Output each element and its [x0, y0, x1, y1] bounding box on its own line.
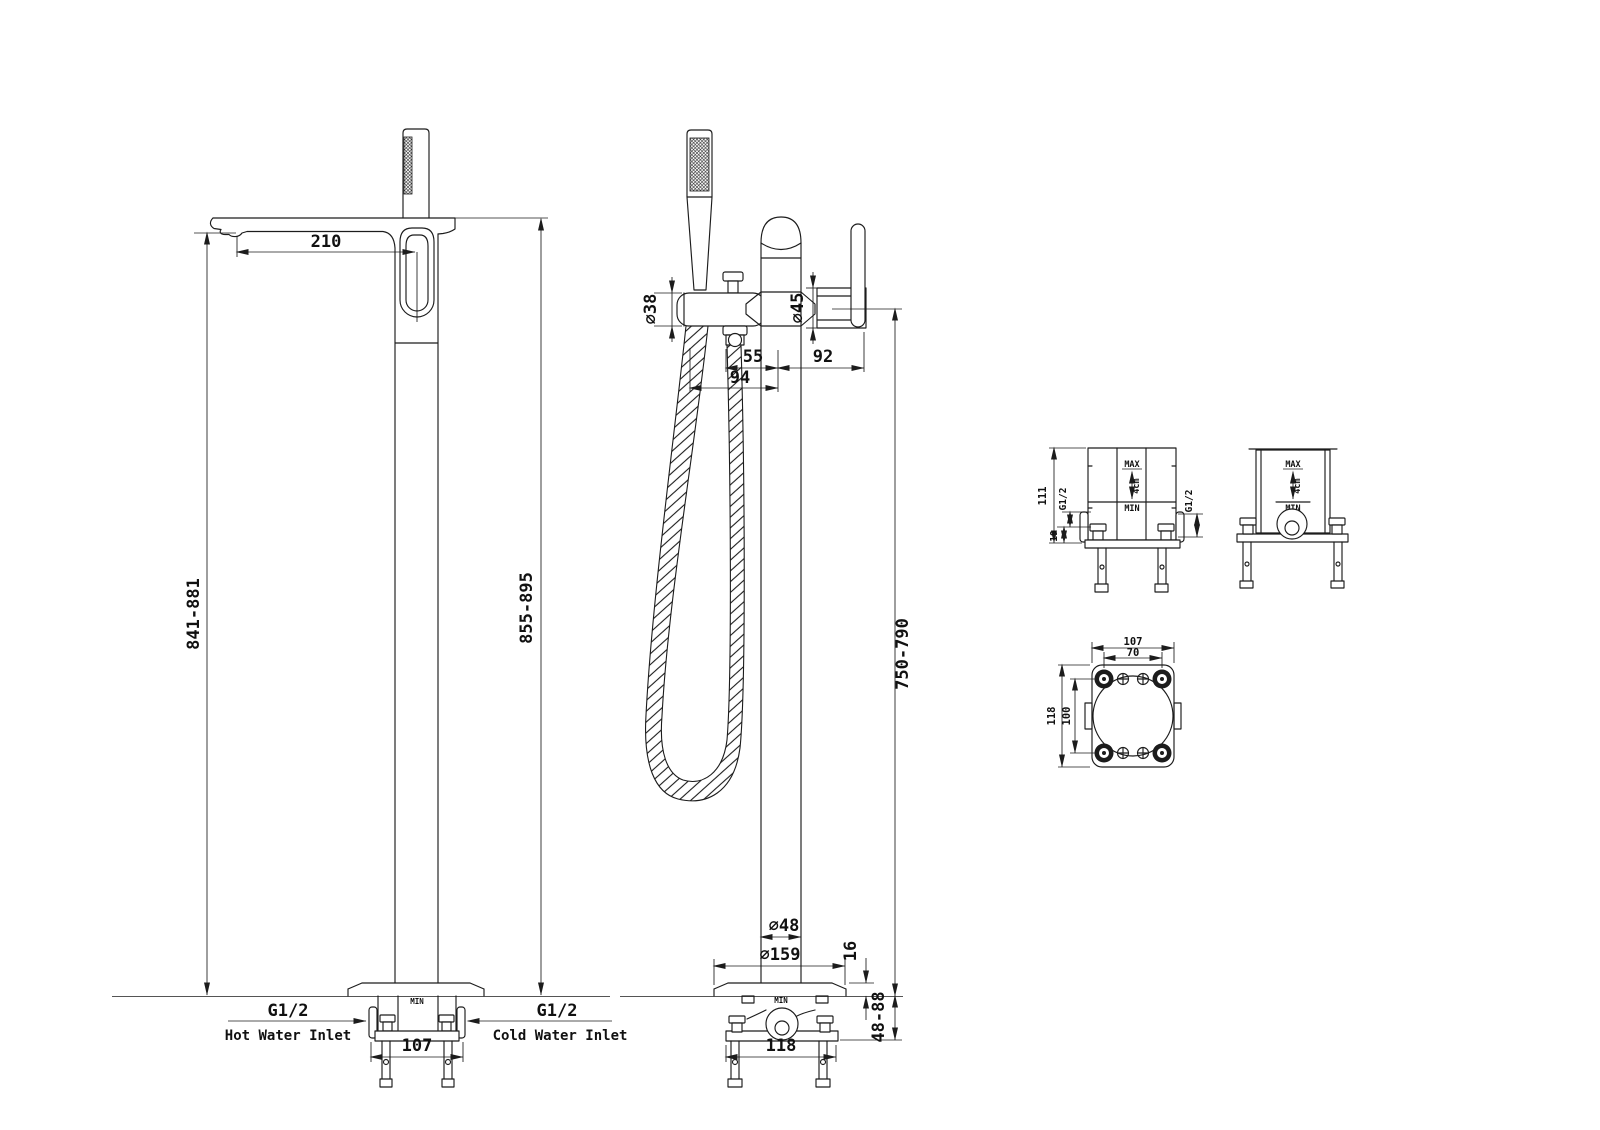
bracket-boss-bore — [775, 1021, 789, 1035]
bolt-right-body — [442, 1022, 451, 1031]
max-label-front: MAX — [1124, 460, 1139, 470]
technical-drawing-page: MIN 210 841-881 855-895 107 G1/2 Hot Wat… — [0, 0, 1600, 1130]
bracket-boss-side-bore — [1285, 521, 1299, 535]
right-thread-label: G1/2 — [1184, 490, 1195, 513]
dim-body-height: 111 — [1037, 487, 1049, 506]
bolt-right-front-body — [820, 1023, 830, 1032]
min-label-front: MIN — [1124, 504, 1139, 514]
left-thread-label: G1/2 — [1058, 488, 1069, 511]
dim-plate-depth: 118 — [1046, 707, 1058, 726]
dim-leg-spacing: 118 — [766, 1036, 797, 1056]
plate-tab-right — [1174, 703, 1181, 729]
dim-hose-to-center: 55 — [743, 347, 763, 367]
plate-min-label-side: MIN — [410, 997, 424, 1006]
dim-center-to-lever: 92 — [813, 347, 833, 367]
diverter-neck — [728, 281, 738, 293]
base-assembly-front: MIN — [714, 983, 846, 1087]
base-assembly-side: MIN — [348, 983, 484, 1087]
dim-bolt-spacing-y: 100 — [1061, 707, 1073, 726]
mount-bracket-front — [1080, 512, 1184, 592]
bolt-right — [439, 1015, 454, 1022]
dim-spout-height-range: 841-881 — [184, 578, 204, 650]
dim-handset-dia: ∅38 — [641, 294, 661, 325]
dim-cartridge-dia: ∅45 — [788, 293, 808, 324]
dim-inlet-spacing: 107 — [402, 1036, 433, 1056]
bracket-ear-left — [742, 996, 754, 1003]
mount-bolt-left-body — [1093, 531, 1103, 540]
hand-shower-front — [687, 130, 712, 290]
dim-overall-height-range: 855-895 — [517, 572, 537, 644]
plate-tab-left — [1085, 703, 1092, 729]
cold-water-inlet-callout: G1/2 Cold Water Inlet — [468, 1001, 627, 1044]
column-front — [746, 217, 815, 983]
dim-inlet-to-base: 19 — [1049, 530, 1060, 542]
installation-drawing: MIN 210 841-881 855-895 107 G1/2 Hot Wat… — [0, 0, 1600, 1130]
dim-base-dia: ∅159 — [760, 945, 801, 965]
corner-bolts — [1095, 670, 1172, 763]
dim-embed-depth-range: 48-88 — [869, 991, 889, 1042]
shower-hose — [646, 326, 745, 801]
dim-screw-spacing-x: 70 — [1127, 647, 1140, 659]
bolt-left-front-body — [732, 1023, 742, 1032]
side-bolt-left — [1240, 518, 1256, 525]
plate-screws — [1118, 674, 1149, 759]
travel-label-side: 4cm — [1293, 478, 1303, 493]
mount-side-view: MAX 4cm MIN — [1237, 449, 1348, 588]
column-side — [395, 234, 438, 983]
dim-spout-reach: 210 — [311, 232, 342, 252]
cold-thread-label: G1/2 — [537, 1001, 578, 1021]
hand-shower-side — [403, 129, 429, 218]
spray-face-front — [690, 138, 709, 191]
side-view-dimensions: 210 841-881 855-895 107 G1/2 Hot Water I… — [112, 218, 627, 1062]
mount-bolt-right-body — [1161, 531, 1171, 540]
side-bolt-right — [1329, 518, 1345, 525]
mount-bolt-right — [1158, 524, 1174, 531]
bolt-left — [380, 1015, 395, 1022]
side-bolt-left-body — [1243, 525, 1253, 534]
side-bolt-right-body — [1332, 525, 1342, 534]
side-view: MIN 210 841-881 855-895 107 G1/2 Hot Wat… — [112, 129, 627, 1087]
dim-base-thickness: 16 — [841, 941, 861, 961]
hot-water-inlet-callout: G1/2 Hot Water Inlet — [225, 1001, 366, 1044]
plate-min-label-front: MIN — [774, 996, 788, 1005]
dim-lever-height-range: 750-790 — [893, 618, 913, 690]
bolt-left-front — [729, 1016, 745, 1023]
dim-handset-to-center: 94 — [730, 368, 750, 388]
bracket-ear-right — [816, 996, 828, 1003]
mount-front-view: MAX 4cm MIN 111 — [1037, 448, 1203, 592]
dim-column-dia: ∅48 — [769, 916, 800, 936]
mount-bracket-side — [1237, 509, 1348, 588]
bolt-right-front — [817, 1016, 833, 1023]
front-view: MIN — [620, 130, 913, 1087]
hot-thread-label: G1/2 — [268, 1001, 309, 1021]
travel-label-front: 4cm — [1132, 478, 1142, 493]
diverter-knob — [723, 272, 743, 281]
hot-inlet-label: Hot Water Inlet — [225, 1028, 351, 1044]
hose-nut-circle — [729, 334, 742, 347]
lever-blade — [851, 224, 865, 327]
handle-front — [817, 224, 866, 328]
mount-bolt-left — [1090, 524, 1106, 531]
max-label-side: MAX — [1285, 460, 1300, 470]
mount-top-view: 107 70 118 100 — [1046, 636, 1181, 767]
cold-inlet-label: Cold Water Inlet — [493, 1028, 628, 1044]
spray-face-side — [404, 137, 412, 194]
bolt-left-body — [383, 1022, 392, 1031]
